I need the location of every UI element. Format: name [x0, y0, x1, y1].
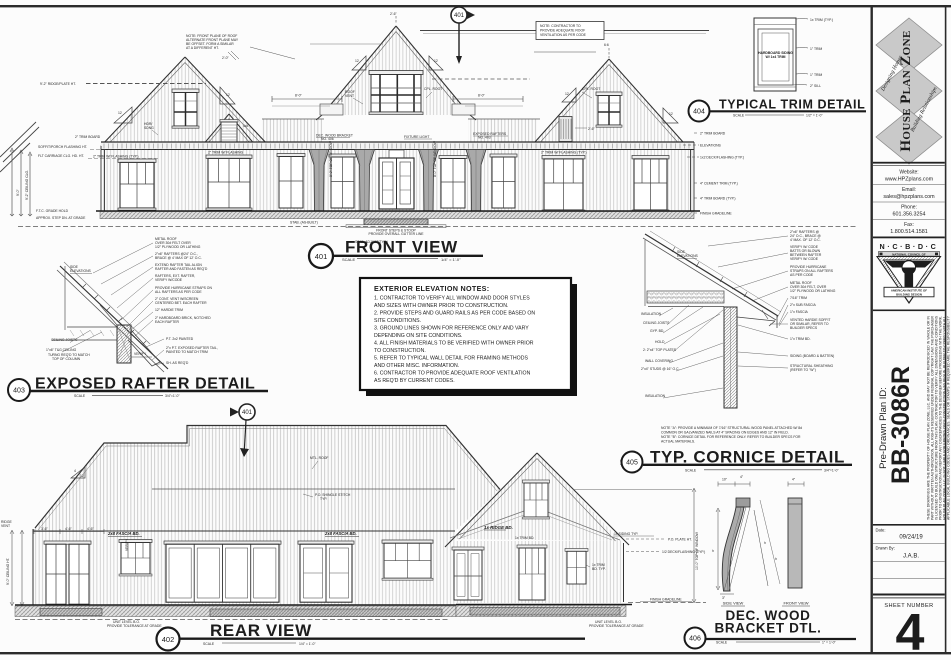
svg-text:9'-0": 9'-0"	[16, 188, 20, 196]
svg-text:401: 401	[242, 410, 253, 416]
svg-text:2'-0": 2'-0"	[222, 56, 230, 60]
svg-text:1/2 DECK/FLASHING (TYP.): 1/2 DECK/FLASHING (TYP.)	[662, 550, 705, 554]
svg-text:12: 12	[434, 59, 438, 63]
svg-text:h: h	[775, 557, 777, 561]
svg-text:Fax:: Fax:	[904, 222, 914, 228]
svg-text:4: 4	[74, 469, 76, 473]
svg-text:AT A DIFFERENT HT.: AT A DIFFERENT HT.	[186, 46, 219, 50]
svg-text:SITE CONDITIONS.: SITE CONDITIONS.	[374, 318, 421, 324]
svg-text:1"x6" T&G CEILING: 1"x6" T&G CEILING	[46, 348, 77, 352]
svg-text:APPROX. STEP DN. AT GRADE: APPROX. STEP DN. AT GRADE	[36, 216, 86, 220]
svg-text:ELEVATIONS: ELEVATIONS	[700, 144, 722, 148]
svg-text:1/4" = 1'-0": 1/4" = 1'-0"	[299, 642, 316, 646]
svg-text:1x TRIM BD.: 1x TRIM BD.	[515, 536, 534, 540]
svg-text:4'-6": 4'-6"	[65, 527, 73, 531]
svg-text:Website:: Website:	[899, 170, 918, 176]
svg-text:1/2" = 1'-0": 1/2" = 1'-0"	[806, 114, 823, 118]
svg-text:9'-2" RIDGE/PLATE HT.: 9'-2" RIDGE/PLATE HT.	[40, 82, 76, 86]
svg-text:REAR VIEW: REAR VIEW	[210, 621, 312, 640]
svg-text:1"x FASCIA: 1"x FASCIA	[790, 310, 809, 314]
svg-text:F.T.C. GRADE HOLD: F.T.C. GRADE HOLD	[36, 209, 69, 213]
svg-text:4' MAX. OF 12' O.C.: 4' MAX. OF 12' O.C.	[790, 238, 821, 242]
svg-text:NATIONAL COUNCIL OF: NATIONAL COUNCIL OF	[892, 252, 926, 256]
svg-text:SCALE: SCALE	[342, 257, 355, 262]
svg-text:8'-0": 8'-0"	[478, 94, 486, 98]
svg-text:4: 4	[896, 604, 925, 660]
svg-text:404: 404	[693, 109, 705, 116]
svg-text:sales@hpzplans.com: sales@hpzplans.com	[883, 194, 935, 200]
svg-text:1. CONTRACTOR TO VERIFY ALL WI: 1. CONTRACTOR TO VERIFY ALL WINDOW AND D…	[374, 296, 530, 302]
svg-text:6:6: 6:6	[604, 43, 609, 47]
svg-text:HOLD: HOLD	[655, 340, 665, 344]
svg-text:CENTERED BET. EACH RAFTER: CENTERED BET. EACH RAFTER	[155, 301, 207, 305]
svg-text:SCALE: SCALE	[74, 394, 86, 398]
svg-text:NOTE: CONTRACTOR TO: NOTE: CONTRACTOR TO	[540, 24, 581, 28]
svg-text:SCALE: SCALE	[716, 641, 728, 645]
svg-text:2" TRIM BOARD: 2" TRIM BOARD	[75, 135, 101, 139]
svg-text:AND SIZES WITH OWNER PRIOR TO: AND SIZES WITH OWNER PRIOR TO CONSTRUCTI…	[374, 303, 508, 309]
svg-text:TO CONSTRUCTION.: TO CONSTRUCTION.	[374, 348, 426, 354]
svg-text:AS REQ'D BY CURRENT CODES.: AS REQ'D BY CURRENT CODES.	[374, 378, 455, 384]
svg-text:SOFFIT/PORCH FLASHING HT.: SOFFIT/PORCH FLASHING HT.	[38, 145, 87, 149]
svg-text:3. GROUND LINES SHOWN FOR REFE: 3. GROUND LINES SHOWN FOR REFERENCE ONLY…	[374, 326, 529, 332]
svg-text:09/24/19: 09/24/19	[899, 535, 923, 541]
svg-text:(REFER TO "W"): (REFER TO "W")	[790, 368, 816, 372]
svg-text:2" TRIM W/ FLASHING (TYP.): 2" TRIM W/ FLASHING (TYP.)	[93, 155, 139, 159]
svg-text:FINISH GRADELINE: FINISH GRADELINE	[700, 212, 732, 216]
svg-text:1" = 1'-0": 1" = 1'-0"	[822, 641, 837, 645]
svg-text:2. PROVIDE STEPS AND GUARD RAI: 2. PROVIDE STEPS AND GUARD RAILS AS PER …	[374, 311, 535, 317]
svg-text:3/4"=1'-0": 3/4"=1'-0"	[824, 469, 839, 473]
svg-text:VERIFY: VERIFY	[125, 538, 129, 551]
svg-text:2x8 FASCIA BD.: 2x8 FASCIA BD.	[324, 531, 357, 536]
svg-text:P.O. PLATE HT.: P.O. PLATE HT.	[668, 538, 692, 542]
svg-text:SIDING (BOARD & BATTEN): SIDING (BOARD & BATTEN)	[790, 354, 834, 358]
svg-text:1.800.514.1581: 1.800.514.1581	[890, 229, 927, 235]
svg-text:2'-6": 2'-6"	[390, 12, 398, 16]
svg-text:BUILDING DESIGN: BUILDING DESIGN	[896, 292, 922, 296]
svg-text:PROVIDE OVERALL GUTTER LINE: PROVIDE OVERALL GUTTER LINE	[368, 232, 424, 236]
svg-text:4" CEMENT TRIM (TYP.): 4" CEMENT TRIM (TYP.)	[700, 182, 738, 186]
svg-text:PROVIDE TOLERANCE AT GRADE: PROVIDE TOLERANCE AT GRADE	[107, 624, 162, 628]
svg-text:VERIFY W/CODE: VERIFY W/CODE	[155, 278, 183, 282]
svg-text:8'-0" TOP OF WINDOW: 8'-0" TOP OF WINDOW	[433, 140, 437, 177]
svg-text:1x SIDING TYP.: 1x SIDING TYP.	[614, 532, 638, 536]
svg-text:12: 12	[355, 59, 359, 63]
svg-text:J.A.B.: J.A.B.	[903, 554, 919, 560]
svg-text:401: 401	[315, 252, 328, 261]
svg-text:FRONT VIEW: FRONT VIEW	[783, 601, 808, 606]
svg-text:4'-6": 4'-6"	[87, 527, 95, 531]
svg-text:402: 402	[162, 635, 175, 644]
svg-text:3/4"=1'-0": 3/4"=1'-0"	[165, 394, 180, 398]
svg-text:12" HARDIE TRIM: 12" HARDIE TRIM	[155, 308, 183, 312]
svg-text:BD. TYP.: BD. TYP.	[592, 567, 606, 571]
svg-text:EACH RAFTER: EACH RAFTER	[155, 320, 179, 324]
svg-text:VERIFY: VERIFY	[134, 352, 147, 356]
svg-text:SIDE VIEW: SIDE VIEW	[723, 601, 744, 606]
svg-text:1/2" PLYWOOD OR LATHING: 1/2" PLYWOOD OR LATHING	[155, 245, 201, 249]
svg-text:VENT: VENT	[345, 94, 354, 98]
svg-text:2" TRIM W/ FLASHING: 2" TRIM W/ FLASHING	[208, 151, 244, 155]
svg-text:BUILDER SPECS: BUILDER SPECS	[790, 326, 818, 330]
svg-text:h: h	[764, 541, 766, 545]
svg-text:P.T. 2x2 PAINTED: P.T. 2x2 PAINTED	[166, 337, 194, 341]
svg-text:1"x TRIM BD.: 1"x TRIM BD.	[790, 337, 811, 341]
svg-text:NOTE "A": PROVIDE A MINIMUM OF: NOTE "A": PROVIDE A MINIMUM OF 7/16" STR…	[661, 426, 802, 430]
svg-text:COMMON OR GALVANIZED NAILS AT: COMMON OR GALVANIZED NAILS AT 4" SPACING…	[661, 431, 789, 435]
svg-text:NOTE "B": CORNICE DETAIL FOR R: NOTE "B": CORNICE DETAIL FOR REFERENCE O…	[661, 435, 801, 439]
svg-text:12: 12	[118, 111, 122, 115]
svg-text:1x2 DECK/FLASHING (TYP.): 1x2 DECK/FLASHING (TYP.)	[700, 156, 744, 160]
svg-text:N·C·B·D·C: N·C·B·D·C	[880, 242, 939, 251]
svg-text:TOP OF COLUMN: TOP OF COLUMN	[52, 357, 81, 361]
svg-text:CPL. ROOT: CPL. ROOT	[582, 87, 600, 91]
svg-text:SCALE: SCALE	[733, 114, 745, 118]
svg-text:VENTILATION AS PER CODE: VENTILATION AS PER CODE	[540, 33, 587, 37]
svg-text:1/4" = 1'-0": 1/4" = 1'-0"	[441, 257, 461, 262]
svg-text:405: 405	[626, 460, 638, 467]
svg-text:12: 12	[80, 474, 84, 478]
svg-text:ALL RAFTERS AS PER CODE: ALL RAFTERS AS PER CODE	[155, 290, 202, 294]
svg-text:12: 12	[669, 112, 673, 116]
svg-text:SCALE: SCALE	[685, 469, 697, 473]
svg-text:8'-0": 8'-0"	[295, 94, 303, 98]
svg-text:ELEVATIONS: ELEVATIONS	[70, 269, 92, 273]
svg-text:FLT CARRIAGE CLG. HD. HT.: FLT CARRIAGE CLG. HD. HT.	[38, 154, 84, 158]
svg-text:1x TRIM (TYP.): 1x TRIM (TYP.)	[810, 18, 833, 22]
svg-text:BRACE @ 4' MAX OF 12' O.C.: BRACE @ 4' MAX OF 12' O.C.	[155, 256, 202, 260]
svg-text:8'-0" TOP OF WINDOW: 8'-0" TOP OF WINDOW	[329, 140, 333, 177]
svg-text:9'-0" CEILING HT.: 9'-0" CEILING HT.	[6, 558, 10, 585]
svg-text:VENT: VENT	[1, 524, 10, 528]
svg-text:CEILING JOISTS: CEILING JOISTS	[643, 321, 670, 325]
svg-text:SH. AS REQ'D: SH. AS REQ'D	[166, 361, 189, 365]
svg-text:MTL. ROOF: MTL. ROOF	[310, 456, 328, 460]
svg-text:INSULATION: INSULATION	[645, 394, 666, 398]
svg-text:2" SILL: 2" SILL	[810, 84, 821, 88]
svg-text:House Plan Zone: House Plan Zone	[898, 30, 914, 151]
svg-text:PAINTED TO MATCH TRIM: PAINTED TO MATCH TRIM	[166, 350, 208, 354]
svg-text:RAFTER AND FASTEN AS REQ'D: RAFTER AND FASTEN AS REQ'D	[155, 267, 208, 271]
svg-text:FIXTURE LIGHT: FIXTURE LIGHT	[404, 135, 429, 139]
svg-text:2" TRIM W/ FLASHING (TYP.): 2" TRIM W/ FLASHING (TYP.)	[541, 151, 587, 155]
svg-text:10": 10"	[722, 478, 728, 482]
svg-text:FINISH GRADELINE: FINISH GRADELINE	[650, 598, 682, 602]
svg-text:STAB. (AS-BUILT): STAB. (AS-BUILT)	[290, 221, 318, 225]
svg-text:TYP.: TYP.	[320, 497, 327, 501]
svg-text:SDNG: SDNG	[144, 126, 154, 130]
svg-text:TYPICAL TRIM DETAIL: TYPICAL TRIM DETAIL	[719, 98, 865, 112]
svg-text:PROVIDE TOLERANCE AT GRADE: PROVIDE TOLERANCE AT GRADE	[589, 624, 644, 628]
svg-text:9'-2" CEILING CLG.: 9'-2" CEILING CLG.	[25, 170, 29, 200]
svg-text:401: 401	[454, 13, 465, 19]
svg-text:2'-6": 2'-6"	[588, 127, 596, 131]
svg-text:AS PER CODE: AS PER CODE	[790, 273, 814, 277]
svg-text:2: 2"x4" TOP PLATES: 2: 2"x4" TOP PLATES	[643, 348, 677, 352]
svg-text:W/ 1x4 TRIM: W/ 1x4 TRIM	[766, 55, 786, 59]
svg-text:BRACKET DTL.: BRACKET DTL.	[715, 621, 822, 636]
svg-text:12: 12	[565, 92, 569, 96]
svg-text:APPLICABLE LOCAL BUILDING CODE: APPLICABLE LOCAL BUILDING CODES AND ORDI…	[947, 315, 951, 520]
svg-text:DEPENDING ON SITE CONDITIONS.: DEPENDING ON SITE CONDITIONS.	[374, 333, 462, 339]
svg-text:BB-3086R: BB-3086R	[887, 366, 915, 484]
svg-text:3'-6": 3'-6"	[41, 527, 49, 531]
svg-text:4. ALL FINISH MATERIALS TO BE: 4. ALL FINISH MATERIALS TO BE VERIFIED W…	[374, 341, 534, 347]
svg-text:AND OTHER MISC. INFORMATION.: AND OTHER MISC. INFORMATION.	[374, 363, 459, 369]
svg-text:ACTUAL MATERIALS.: ACTUAL MATERIALS.	[661, 440, 695, 444]
svg-text:2"x4" STUDS @ 16" O.C.: 2"x4" STUDS @ 16" O.C.	[641, 367, 680, 371]
svg-text:4x4: 4x4	[243, 124, 249, 128]
svg-text:VERIFY W/ CODE: VERIFY W/ CODE	[790, 257, 819, 261]
svg-text:h: h	[712, 549, 714, 553]
svg-text:SCALE: SCALE	[203, 642, 215, 646]
svg-text:www.HPZplans.com: www.HPZplans.com	[884, 177, 934, 183]
svg-text:Phone:: Phone:	[901, 205, 917, 211]
svg-text:601.356.3254: 601.356.3254	[893, 212, 926, 218]
svg-text:403: 403	[13, 388, 25, 395]
svg-text:7/16" TRIM: 7/16" TRIM	[790, 296, 807, 300]
svg-text:FRONT VIEW: FRONT VIEW	[345, 238, 458, 257]
svg-text:PROVIDE ADEQUATE ROOF: PROVIDE ADEQUATE ROOF	[540, 29, 585, 33]
svg-text:6. CONTRACTOR TO PROVIDE ADEQU: 6. CONTRACTOR TO PROVIDE ADEQUATE ROOF V…	[374, 371, 531, 377]
svg-text:406: 406	[689, 636, 701, 643]
svg-text:WALL COVERING: WALL COVERING	[645, 359, 673, 363]
svg-text:1" TRIM: 1" TRIM	[810, 73, 822, 77]
svg-text:ELEVATIONS: ELEVATIONS	[677, 254, 699, 258]
svg-text:1x RIDGE BD.: 1x RIDGE BD.	[484, 525, 513, 530]
svg-text:2" TRIM BOARD: 2" TRIM BOARD	[700, 132, 726, 136]
svg-text:5. REFER TO TYPICAL WALL DETAI: 5. REFER TO TYPICAL WALL DETAIL FOR FRAM…	[374, 356, 528, 362]
svg-text:Email:: Email:	[902, 187, 916, 193]
svg-text:EXTERIOR ELEVATION NOTES:: EXTERIOR ELEVATION NOTES:	[374, 284, 489, 293]
svg-text:Date:: Date:	[876, 528, 886, 533]
svg-text:INSULATION: INSULATION	[641, 312, 662, 316]
svg-text:4" TRIM BOARD (TYP.): 4" TRIM BOARD (TYP.)	[700, 197, 736, 201]
svg-text:2x8 FASCIA BD.: 2x8 FASCIA BD.	[107, 531, 140, 536]
svg-text:1/2" PLYWOOD OR LATHING: 1/2" PLYWOOD OR LATHING	[790, 289, 836, 293]
svg-text:1" TRIM: 1" TRIM	[810, 47, 822, 51]
svg-text:Drawn By:: Drawn By:	[876, 546, 895, 551]
svg-text:2"x SUB FASCIA: 2"x SUB FASCIA	[790, 303, 816, 307]
svg-text:GYP. BD.: GYP. BD.	[650, 329, 664, 333]
svg-text:CPL. ROOT: CPL. ROOT	[424, 87, 442, 91]
svg-text:12: 12	[226, 93, 230, 97]
